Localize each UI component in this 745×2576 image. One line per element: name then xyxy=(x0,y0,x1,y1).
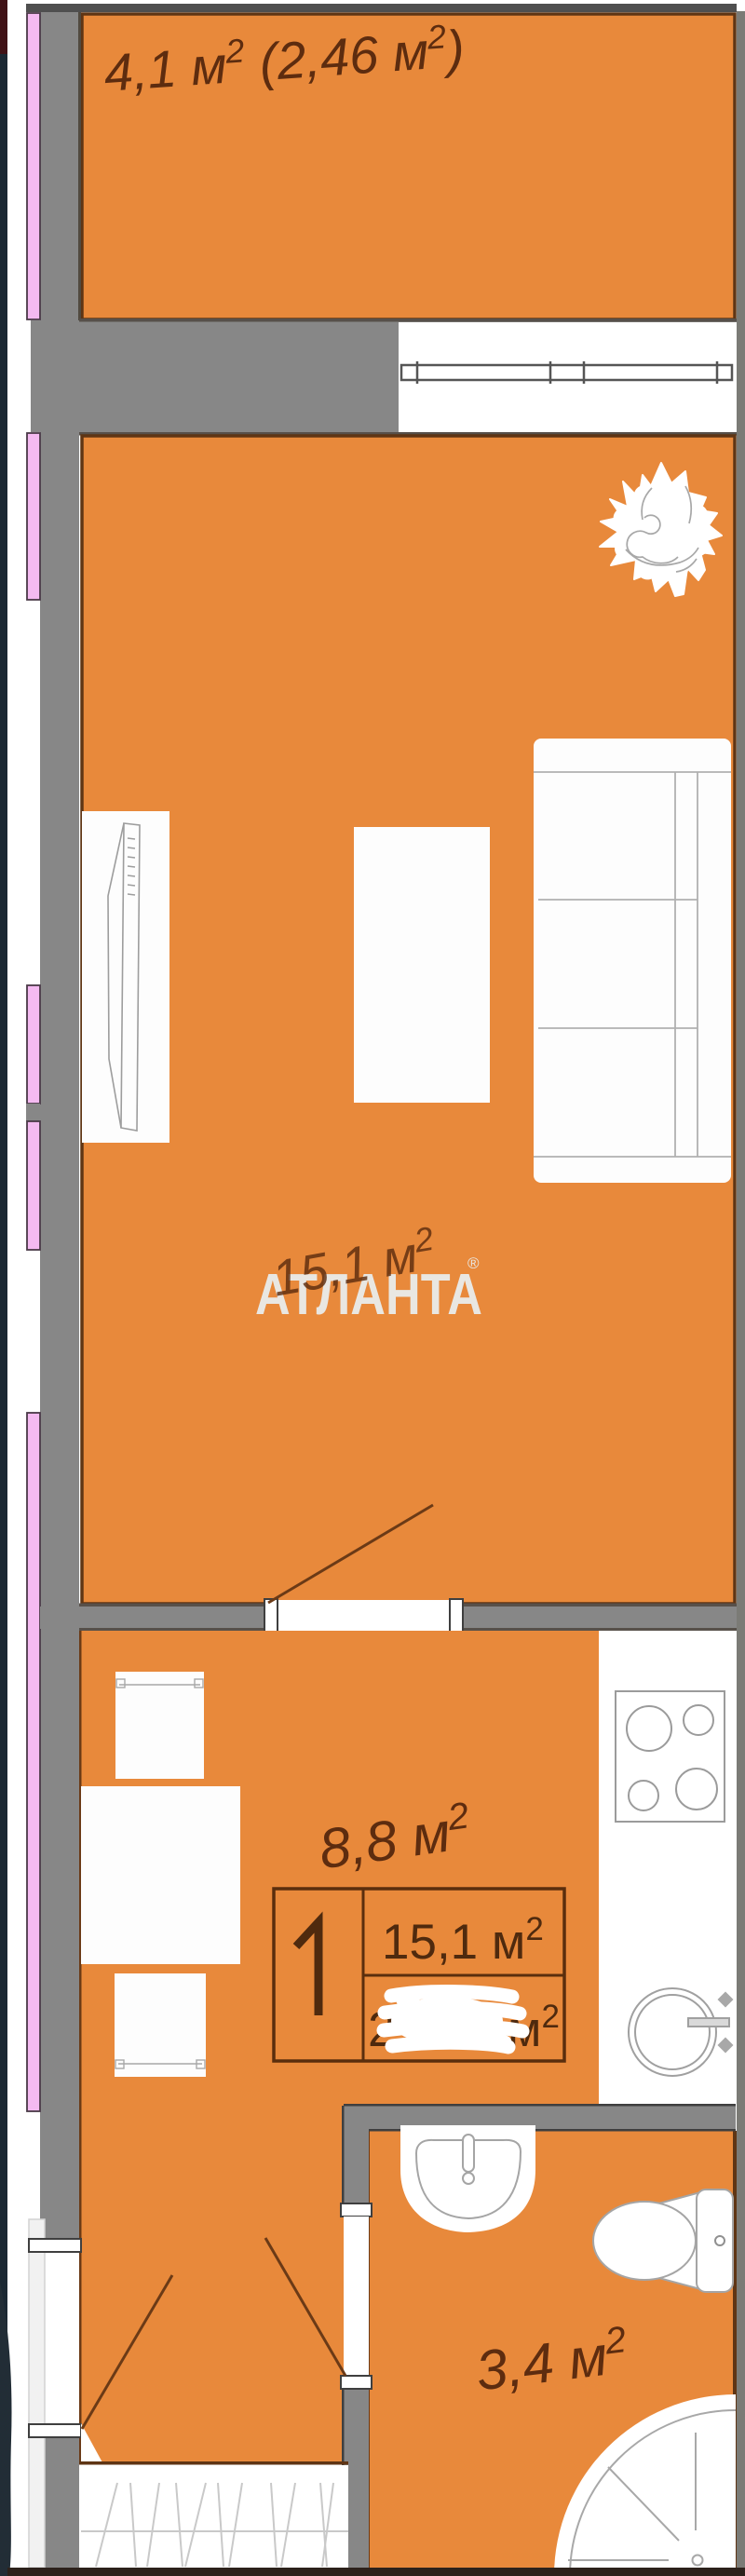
svg-text:®: ® xyxy=(467,1254,480,1272)
svg-text:15,1 м2: 15,1 м2 xyxy=(382,1911,544,1970)
